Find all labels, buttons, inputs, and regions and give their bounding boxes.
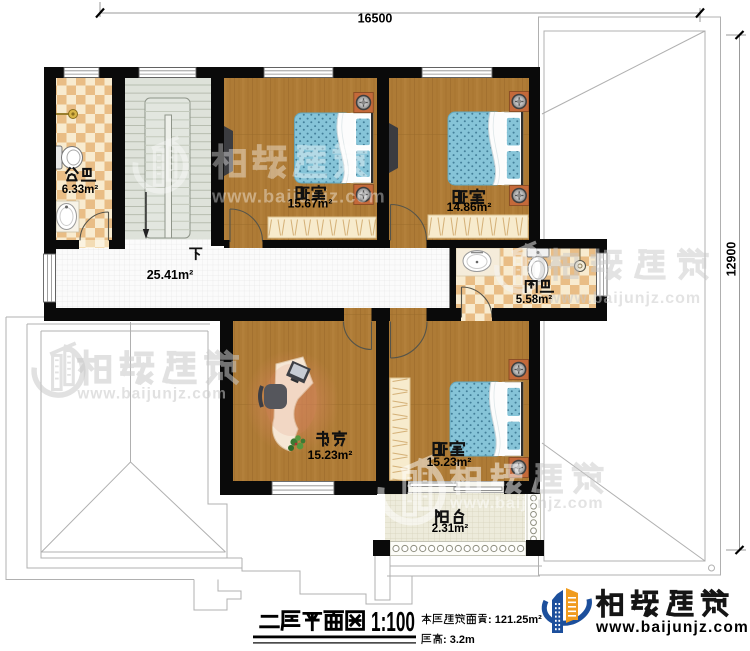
svg-text:www.baijunjz.com: www.baijunjz.com [547, 290, 701, 307]
svg-text:25.41m²: 25.41m² [147, 268, 194, 282]
svg-text:: 121.25m²: : 121.25m² [488, 614, 542, 626]
svg-text:www.baijunjz.com: www.baijunjz.com [76, 386, 227, 403]
svg-text:15.67m²: 15.67m² [288, 197, 333, 211]
svg-text:: 3.2m: : 3.2m [443, 634, 475, 646]
svg-text:15.23m²: 15.23m² [308, 448, 353, 462]
svg-text:5.58m²: 5.58m² [516, 294, 553, 306]
svg-text:14.86m²: 14.86m² [447, 200, 492, 214]
svg-text:16500: 16500 [358, 12, 393, 26]
svg-text:12900: 12900 [725, 242, 739, 277]
svg-text:1:100: 1:100 [371, 606, 415, 637]
svg-text:www.baijunjz.com: www.baijunjz.com [595, 619, 749, 636]
svg-text:15.23m²: 15.23m² [427, 455, 472, 469]
svg-text:6.33m²: 6.33m² [62, 184, 99, 196]
svg-text:2.31m²: 2.31m² [432, 523, 469, 535]
